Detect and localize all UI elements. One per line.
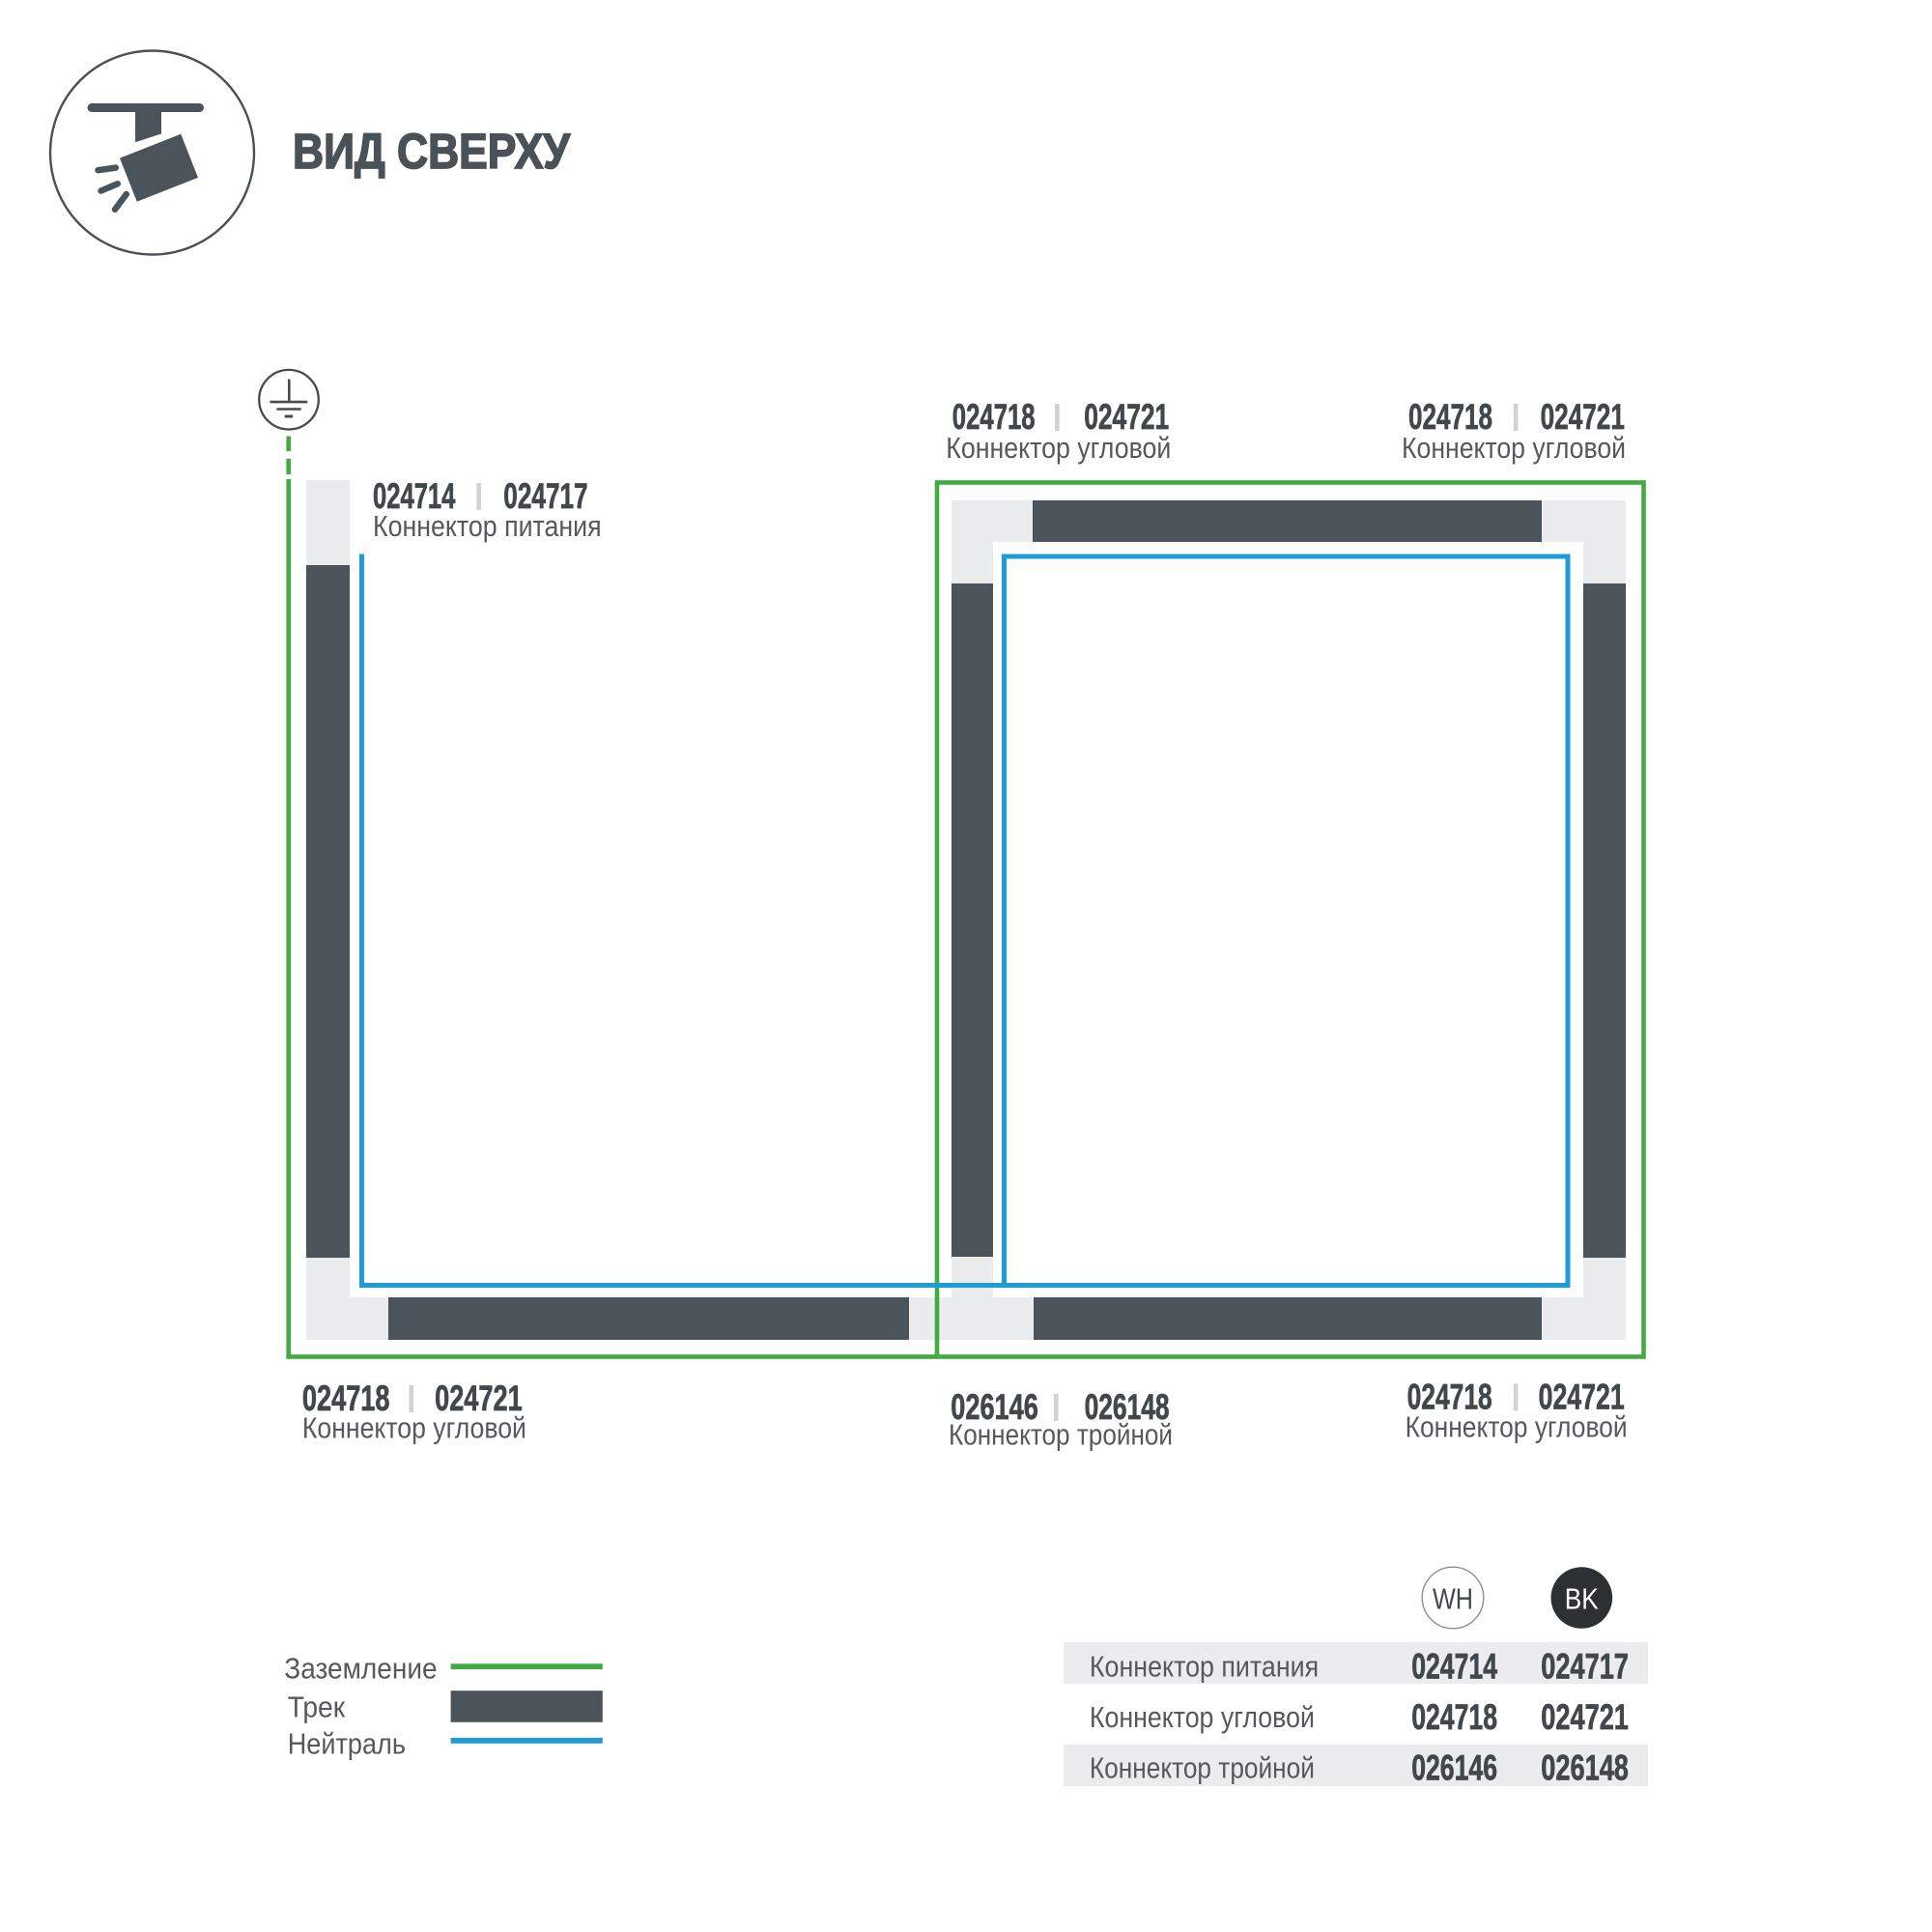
svg-text:Коннектор тройной: Коннектор тройной [949,1419,1173,1452]
svg-text:024717: 024717 [1541,1647,1629,1687]
svg-text:Коннектор угловой: Коннектор угловой [302,1412,526,1445]
svg-text:026148: 026148 [1541,1748,1629,1788]
svg-text:Трек: Трек [288,1690,346,1723]
svg-text:Коннектор питания: Коннектор питания [373,510,602,543]
svg-text:024718: 024718 [1411,1697,1497,1737]
svg-text:Коннектор тройной: Коннектор тройной [1090,1752,1315,1785]
svg-text:026146: 026146 [1411,1748,1497,1788]
svg-text:Коннектор угловой: Коннектор угловой [1402,432,1626,465]
svg-text:024721: 024721 [1541,1697,1629,1737]
svg-text:024714: 024714 [1411,1647,1497,1687]
svg-text:Нейтраль: Нейтраль [288,1728,406,1761]
svg-text:WH: WH [1433,1581,1473,1615]
svg-text:024718: 024718 [1408,397,1492,437]
svg-text:024718: 024718 [952,397,1036,437]
svg-text:ВИД СВЕРХУ: ВИД СВЕРХУ [293,124,571,179]
svg-text:Коннектор угловой: Коннектор угловой [946,432,1171,465]
svg-text:Коннектор угловой: Коннектор угловой [1090,1701,1315,1734]
svg-text:BK: BK [1565,1581,1599,1615]
svg-text:Заземление: Заземление [284,1652,437,1685]
svg-text:Коннектор питания: Коннектор питания [1090,1651,1319,1684]
svg-text:024721: 024721 [1541,397,1625,437]
svg-text:024721: 024721 [1084,397,1169,437]
svg-text:Коннектор угловой: Коннектор угловой [1406,1411,1628,1444]
